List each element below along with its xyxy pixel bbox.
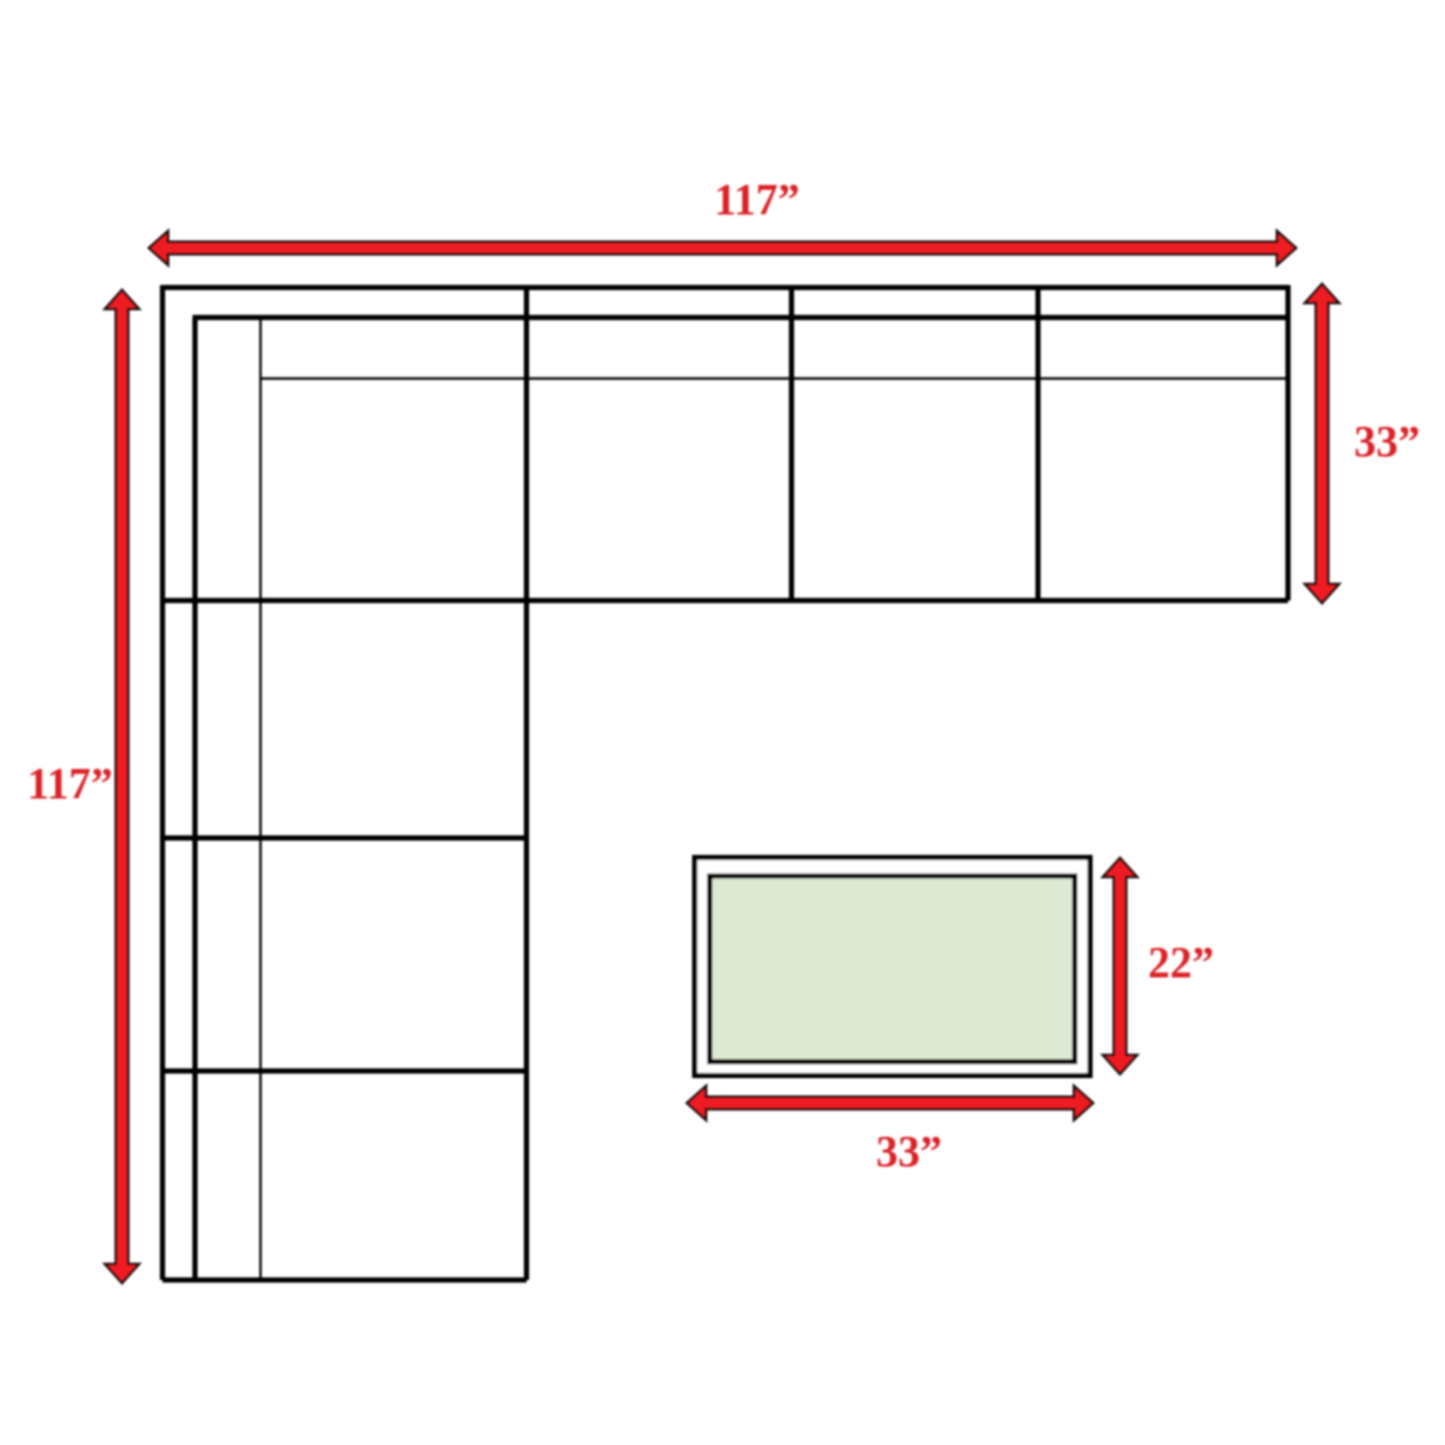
svg-text:33”: 33” (1354, 417, 1420, 466)
svg-text:117”: 117” (27, 759, 113, 808)
svg-text:33”: 33” (876, 1127, 942, 1176)
svg-text:22”: 22” (1148, 938, 1214, 987)
svg-text:117”: 117” (714, 175, 800, 224)
